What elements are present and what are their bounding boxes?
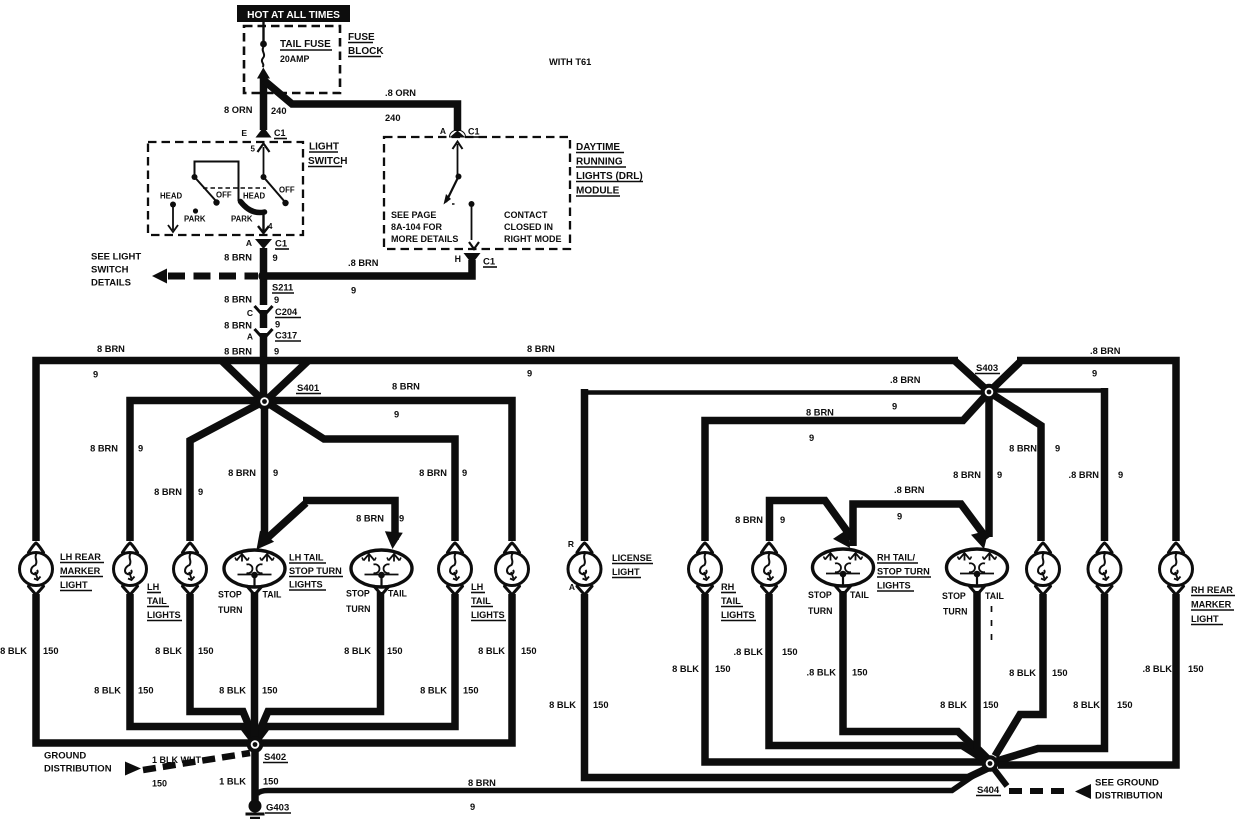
svg-text:9: 9 [470,802,475,812]
svg-text:8 BRN: 8 BRN [356,514,384,524]
svg-text:8 BRN: 8 BRN [97,344,125,354]
svg-text:LICENSE: LICENSE [612,553,652,563]
svg-text:8 BRN: 8 BRN [1009,444,1037,454]
svg-text:CONTACT: CONTACT [504,210,548,220]
svg-text:9: 9 [198,487,203,497]
svg-text:LH: LH [147,582,160,592]
svg-text:9: 9 [780,515,785,525]
svg-text:DETAILS: DETAILS [91,278,131,289]
svg-text:9: 9 [273,253,278,263]
svg-text:8 BLK: 8 BLK [420,686,447,696]
svg-text:MODULE: MODULE [576,186,620,197]
svg-text:8 BLK: 8 BLK [0,646,27,656]
svg-text:8 BLK: 8 BLK [219,686,246,696]
svg-text:TURN: TURN [943,607,967,617]
svg-text:8 BRN: 8 BRN [228,468,256,478]
svg-text:9: 9 [1118,470,1123,480]
svg-text:8 BRN: 8 BRN [90,444,118,454]
svg-text:9: 9 [138,444,143,454]
svg-text:150: 150 [1117,700,1133,710]
svg-text:DISTRIBUTION: DISTRIBUTION [44,764,112,775]
svg-text:LIGHTS: LIGHTS [877,581,911,591]
svg-text:9: 9 [394,410,399,420]
svg-text:8 BLK: 8 BLK [672,664,699,674]
svg-text:STOP TURN: STOP TURN [877,567,930,577]
svg-text:C1: C1 [483,257,496,268]
svg-text:150: 150 [43,646,59,656]
svg-text:PARK: PARK [231,215,253,224]
svg-text:RH TAIL/: RH TAIL/ [877,553,916,563]
svg-text:150: 150 [782,647,798,657]
svg-text:GROUND: GROUND [44,751,86,762]
svg-text:HEAD: HEAD [160,192,182,201]
svg-text:8 BRN: 8 BRN [735,515,763,525]
svg-text:8 BLK: 8 BLK [155,646,182,656]
svg-text:9: 9 [892,402,897,412]
svg-text:150: 150 [198,646,214,656]
svg-text:SWITCH: SWITCH [308,156,347,167]
svg-text:MARKER: MARKER [1191,600,1232,610]
svg-text:150: 150 [387,646,403,656]
svg-text:8 BRN: 8 BRN [419,468,447,478]
svg-text:LIGHTS: LIGHTS [147,610,181,620]
svg-text:240: 240 [271,106,287,116]
svg-text:TAIL FUSE: TAIL FUSE [280,39,331,50]
svg-text:DISTRIBUTION: DISTRIBUTION [1095,791,1163,802]
svg-text:STOP: STOP [218,590,242,600]
svg-text:150: 150 [263,777,279,787]
svg-text:STOP: STOP [808,590,832,600]
svg-text:LIGHTS: LIGHTS [471,610,505,620]
svg-text:RH: RH [721,582,735,592]
svg-text:8 BRN: 8 BRN [806,408,834,418]
svg-text:TURN: TURN [346,604,370,614]
svg-text:HEAD: HEAD [243,192,265,201]
svg-text:STOP TURN: STOP TURN [289,566,342,576]
svg-text:20AMP: 20AMP [280,54,309,64]
svg-text:LIGHT: LIGHT [1191,614,1219,624]
svg-text:8 BLK: 8 BLK [344,646,371,656]
svg-text:LIGHTS: LIGHTS [721,610,755,620]
svg-text:S404: S404 [977,785,1000,796]
svg-text:8 BLK: 8 BLK [478,646,505,656]
svg-text:HOT AT ALL TIMES: HOT AT ALL TIMES [247,10,340,21]
svg-text:150: 150 [262,686,278,696]
svg-text:TAIL: TAIL [471,596,491,606]
svg-text:C1: C1 [274,128,286,138]
svg-text:RH REAR: RH REAR [1191,585,1233,595]
svg-text:OFF: OFF [216,191,232,200]
svg-text:A: A [246,238,252,248]
svg-text:A: A [247,332,253,342]
svg-text:RIGHT MODE: RIGHT MODE [504,234,562,244]
svg-text:A: A [440,126,446,136]
svg-text:9: 9 [351,286,356,296]
svg-text:.8 BRN: .8 BRN [894,485,925,495]
svg-text:9: 9 [93,370,98,380]
svg-text:LIGHT: LIGHT [60,580,88,590]
svg-text:.8 BRN: .8 BRN [348,258,379,268]
svg-text:TAIL: TAIL [721,596,741,606]
svg-text:.8 BRN: .8 BRN [1090,346,1121,356]
svg-text:9: 9 [273,468,278,478]
svg-text:9: 9 [809,433,814,443]
svg-text:1 BLK WHT: 1 BLK WHT [152,755,201,765]
svg-text:LH: LH [471,582,484,592]
svg-text:TAIL: TAIL [147,596,167,606]
svg-text:STOP: STOP [942,591,966,601]
svg-text:R: R [568,539,574,549]
svg-text:RUNNING: RUNNING [576,157,623,168]
svg-text:8 BLK: 8 BLK [94,686,121,696]
svg-text:150: 150 [152,779,167,789]
svg-text:.8 BRN: .8 BRN [890,375,921,385]
svg-text:150: 150 [138,686,154,696]
svg-text:150: 150 [463,686,479,696]
svg-text:8 BRN: 8 BRN [154,487,182,497]
svg-text:4: 4 [268,222,273,231]
svg-text:SEE PAGE: SEE PAGE [391,210,436,220]
svg-text:9: 9 [274,295,279,305]
svg-text:DAYTIME: DAYTIME [576,142,620,153]
svg-text:8 BLK: 8 BLK [549,700,576,710]
svg-text:150: 150 [715,664,731,674]
svg-text:240: 240 [385,113,401,123]
svg-text:MORE DETAILS: MORE DETAILS [391,234,458,244]
svg-text:8 BRN: 8 BRN [392,382,420,392]
svg-text:.8 BLK: .8 BLK [1143,664,1173,674]
svg-text:C317: C317 [275,331,297,341]
svg-text:150: 150 [1188,664,1204,674]
svg-text:E: E [241,128,247,138]
svg-text:8 BRN: 8 BRN [224,295,252,305]
svg-text:S403: S403 [976,363,998,374]
svg-text:S211: S211 [272,283,293,293]
svg-text:BLOCK: BLOCK [348,46,384,57]
svg-text:.8 BRN: .8 BRN [1069,470,1100,480]
svg-text:LH TAIL: LH TAIL [289,553,324,563]
svg-text:9: 9 [274,347,279,357]
svg-text:LH REAR: LH REAR [60,552,101,562]
svg-text:A: A [569,582,575,592]
svg-text:SEE LIGHT: SEE LIGHT [91,252,141,263]
svg-text:OFF: OFF [279,186,295,195]
svg-text:STOP: STOP [346,589,370,599]
svg-text:8A-104 FOR: 8A-104 FOR [391,222,443,232]
svg-text:.8 ORN: .8 ORN [385,88,416,98]
svg-text:8 BRN: 8 BRN [468,778,496,788]
svg-text:9: 9 [897,512,902,522]
svg-text:C1: C1 [468,127,480,137]
svg-text:MARKER: MARKER [60,566,101,576]
svg-text:8 BRN: 8 BRN [224,347,252,357]
svg-text:WITH T61: WITH T61 [549,57,591,67]
svg-text:8 BRN: 8 BRN [527,344,555,354]
svg-text:150: 150 [1052,668,1068,678]
svg-text:8 BRN: 8 BRN [224,321,252,331]
svg-text:H: H [455,254,461,264]
svg-text:150: 150 [593,700,609,710]
svg-text:9: 9 [462,468,467,478]
svg-text:S401: S401 [297,383,320,394]
svg-text:LIGHTS: LIGHTS [289,580,323,590]
svg-text:8 BLK: 8 BLK [940,700,967,710]
svg-text:9: 9 [1092,369,1097,379]
svg-text:C1: C1 [275,239,288,250]
svg-text:PARK: PARK [184,215,206,224]
svg-text:8 BLK: 8 BLK [1073,700,1100,710]
svg-text:TAIL: TAIL [263,590,283,600]
svg-text:LIGHTS (DRL): LIGHTS (DRL) [576,171,643,182]
svg-text:9: 9 [997,470,1002,480]
svg-text:9: 9 [275,320,280,330]
svg-text:8 BLK: 8 BLK [1009,668,1036,678]
svg-text:TURN: TURN [218,605,242,615]
svg-text:.8 BLK: .8 BLK [807,668,837,678]
svg-text:TAIL: TAIL [850,590,870,600]
svg-text:8 BRN: 8 BRN [224,253,252,263]
svg-text:TURN: TURN [808,606,832,616]
svg-text:SEE GROUND: SEE GROUND [1095,778,1159,789]
svg-text:1 BLK: 1 BLK [219,777,246,787]
svg-text:C204: C204 [275,307,298,317]
svg-text:5: 5 [251,145,256,154]
svg-text:.8 BLK: .8 BLK [734,647,764,657]
svg-text:S402: S402 [264,752,286,763]
svg-text:9: 9 [527,369,532,379]
svg-text:CLOSED IN: CLOSED IN [504,222,553,232]
svg-text:8 BRN: 8 BRN [953,470,981,480]
svg-text:LIGHT: LIGHT [309,142,339,153]
svg-text:FUSE: FUSE [348,32,375,43]
svg-text:SWITCH: SWITCH [91,265,129,276]
svg-text:9: 9 [399,514,404,524]
svg-text:TAIL: TAIL [388,589,408,599]
svg-text:8 ORN: 8 ORN [224,105,253,115]
svg-text:9: 9 [1055,444,1060,454]
svg-text:TAIL: TAIL [985,591,1005,601]
svg-text:LIGHT: LIGHT [612,567,640,577]
svg-text:C: C [247,308,253,318]
svg-text:150: 150 [983,700,999,710]
svg-text:G403: G403 [266,803,289,814]
svg-text:150: 150 [852,668,868,678]
svg-text:150: 150 [521,646,537,656]
